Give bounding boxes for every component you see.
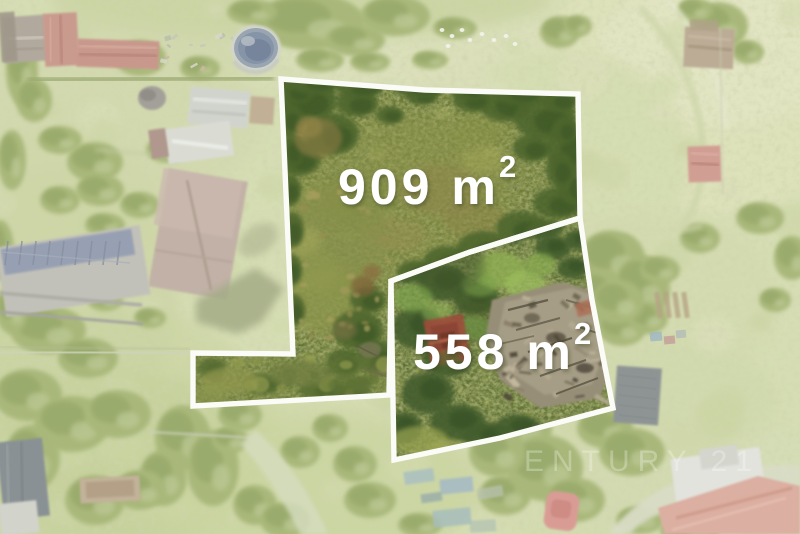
svg-text:ENTURY 21: ENTURY 21 bbox=[524, 445, 760, 478]
svg-text:2: 2 bbox=[574, 316, 591, 351]
svg-text:558 m: 558 m bbox=[413, 324, 575, 380]
svg-text:909 m: 909 m bbox=[338, 159, 500, 215]
svg-text:2: 2 bbox=[499, 149, 516, 184]
